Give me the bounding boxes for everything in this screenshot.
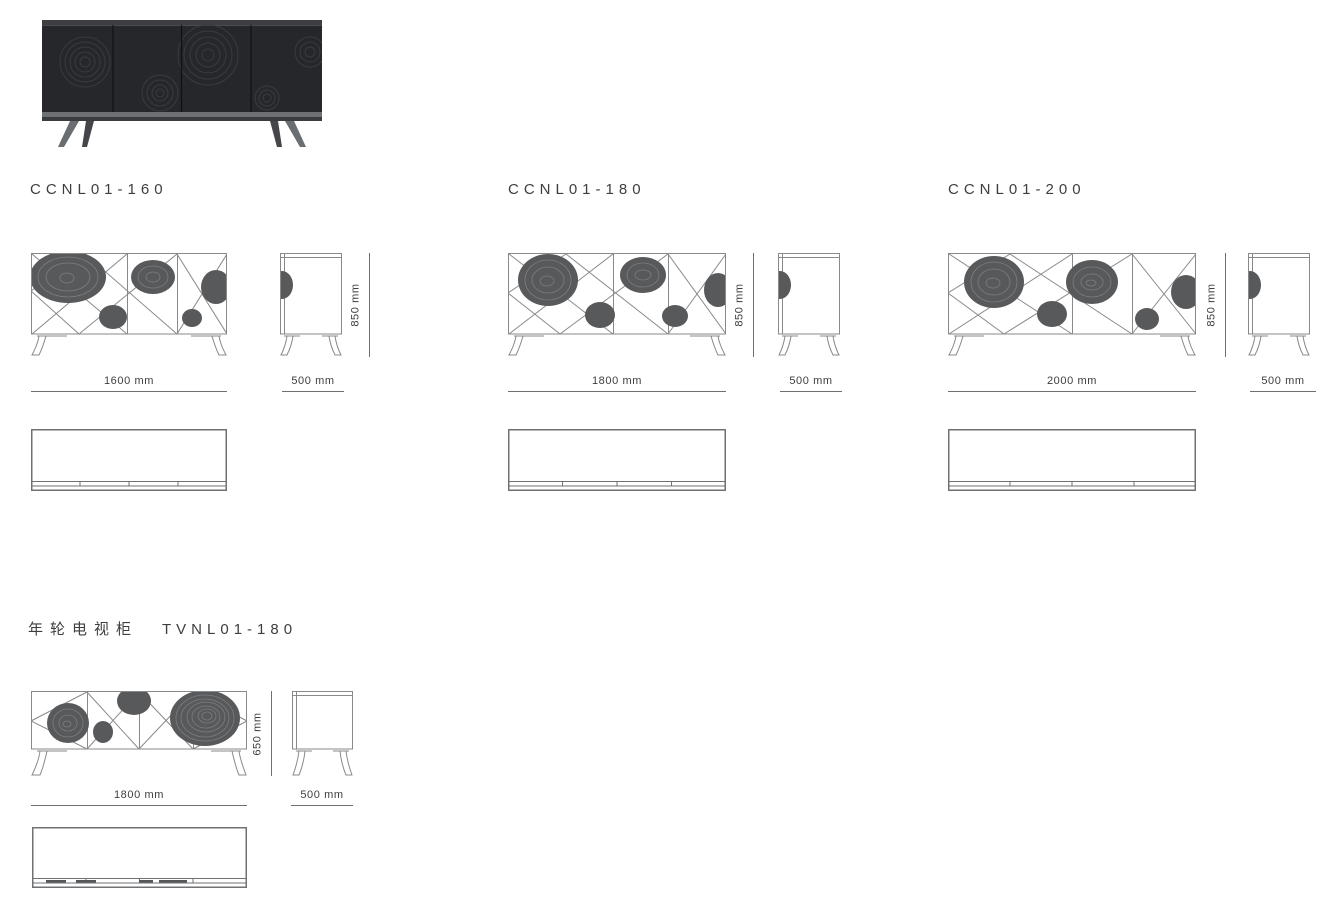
dimension-line [31,805,247,806]
top-view-tvnl01-180 [32,827,247,888]
front-view-ccnl01-200 [948,253,1196,358]
height-dimension-tvnl01-180: 650 mm [246,691,272,776]
dimension-line [31,391,227,392]
product-title-tvnl01-180: 年轮电视柜 TVNL01-180 [28,622,297,638]
depth-dimension-tvnl01-180: 500 mm [291,789,353,806]
width-dimension-ccnl01-160: 1600 mm [31,375,227,392]
depth-dimension-ccnl01-200: 500 mm [1250,375,1316,392]
front-view-ccnl01-180 [508,253,726,358]
dimension-line [282,391,344,392]
depth-dimension-ccnl01-180: 500 mm [780,375,842,392]
top-view-ccnl01-160 [31,429,227,491]
product-title-ccnl01-160: CCNL01-160 [30,182,168,198]
dimension-line [508,391,726,392]
photo-top-surface [42,20,322,25]
legs [779,336,839,355]
legs [32,751,246,775]
width-dimension-ccnl01-200: 2000 mm [948,375,1196,392]
dimension-line [753,253,754,357]
height-dimension-ccnl01-160: 850 mm [344,253,370,357]
product-title-ccnl01-200: CCNL01-200 [948,182,1086,198]
sideboard-photo-render [42,20,322,147]
legs [949,336,1195,355]
legs [32,336,226,355]
product-name-chinese: 年轮电视柜 [28,622,138,638]
front-view-ccnl01-160 [31,253,227,358]
side-view-ccnl01-200 [1248,253,1310,358]
width-label: 1600 mm [31,375,227,391]
dimension-line [369,253,370,357]
side-outline [293,692,353,750]
height-label: 650 mm [252,712,264,755]
dimension-line [291,805,353,806]
top-view-ccnl01-200 [948,429,1196,491]
dimension-line [1250,391,1316,392]
front-view-tvnl01-180 [31,691,247,776]
dimension-line [780,391,842,392]
catalog-page: { "page": { "background": "#ffffff" }, "… [0,0,1332,900]
photo-plinth [42,112,322,117]
height-label: 850 mm [350,283,362,326]
width-label: 1800 mm [31,789,247,805]
top-view-ccnl01-180 [508,429,726,491]
side-view-tvnl01-180 [292,691,353,776]
depth-label: 500 mm [291,789,353,805]
side-view-ccnl01-180 [778,253,840,358]
dimension-line [271,691,272,776]
depth-label: 500 mm [780,375,842,391]
dimension-line [948,391,1196,392]
height-dimension-ccnl01-200: 850 mm [1200,253,1226,357]
height-dimension-ccnl01-180: 850 mm [728,253,754,357]
photo-legs [58,121,306,147]
side-view-ccnl01-160 [280,253,342,358]
dimension-line [1225,253,1226,357]
width-label: 1800 mm [508,375,726,391]
legs [293,751,352,775]
height-label: 850 mm [734,283,746,326]
depth-label: 500 mm [282,375,344,391]
depth-label: 500 mm [1250,375,1316,391]
height-label: 850 mm [1206,283,1218,326]
sideboard-photo [42,20,322,147]
legs [281,336,341,355]
width-label: 2000 mm [948,375,1196,391]
photo-plinth-shadow [42,117,322,121]
product-model: TVNL01-180 [162,622,297,638]
legs [509,336,725,355]
width-dimension-tvnl01-180: 1800 mm [31,789,247,806]
depth-dimension-ccnl01-160: 500 mm [282,375,344,392]
legs [1249,336,1309,355]
width-dimension-ccnl01-180: 1800 mm [508,375,726,392]
product-title-ccnl01-180: CCNL01-180 [508,182,646,198]
